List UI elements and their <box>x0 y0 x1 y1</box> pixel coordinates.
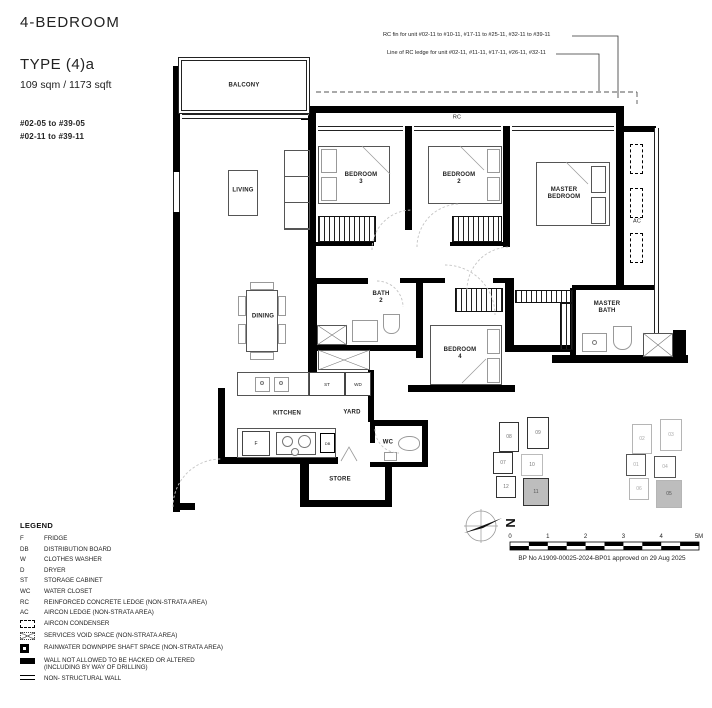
aircon-condenser <box>630 188 643 218</box>
unit-range-2: #02-11 to #39-11 <box>20 132 84 141</box>
pillow <box>591 197 606 224</box>
pillow <box>591 166 606 193</box>
services-void <box>643 333 673 357</box>
toilet <box>383 314 400 334</box>
legend-text: STORAGE CABINET <box>44 577 103 584</box>
scale-tick: 5M <box>695 534 703 540</box>
sofa <box>284 150 310 230</box>
dining-chair <box>238 296 246 316</box>
dining-chair <box>278 296 286 316</box>
key-plan-unit: 03 <box>660 419 682 451</box>
wall-segment <box>316 278 368 284</box>
room-label-balcony: BALCONY <box>228 83 259 90</box>
legend-text: AIRCON CONDENSER <box>44 620 109 627</box>
aircon-condenser <box>630 144 643 174</box>
wall-segment <box>572 285 658 290</box>
wall-segment <box>422 420 428 467</box>
scale-tick: 2 <box>584 534 588 540</box>
dining-chair <box>250 282 274 290</box>
legend-key: WC <box>20 588 44 595</box>
annotation-rc-ledge: Line of RC ledge for unit #02-11, #11-11… <box>387 50 546 56</box>
storage-cabinet: ST <box>309 372 345 396</box>
wall-segment <box>218 388 225 460</box>
wall-segment <box>173 503 195 510</box>
legend-item: RAINWATER DOWNPIPE SHAFT SPACE (NON-STRA… <box>20 644 290 654</box>
basin <box>352 320 378 342</box>
legend-item: WC WATER CLOSET <box>20 588 290 595</box>
wardrobe <box>515 290 573 303</box>
window <box>318 126 403 131</box>
page-title: 4-BEDROOM <box>20 14 120 31</box>
wardrobe <box>318 216 376 242</box>
pillow <box>321 177 337 201</box>
legend-text: DISTRIBUTION BOARD <box>44 546 111 553</box>
wall-segment <box>370 420 428 426</box>
sink-drain <box>279 381 283 385</box>
basin-drain <box>592 340 597 345</box>
legend-item: F FRIDGE <box>20 535 290 542</box>
kitchen-counter <box>237 372 309 396</box>
wall-segment <box>370 462 428 467</box>
wall-segment <box>218 457 338 464</box>
legend-heading: LEGEND <box>20 521 290 530</box>
legend-key: DB <box>20 546 44 553</box>
pillow <box>487 329 500 354</box>
legend-key: F <box>20 535 44 542</box>
key-plan-unit: 04 <box>654 456 676 478</box>
legend-key: RC <box>20 599 44 606</box>
key-plan-left: 08 09 07 10 12 11 <box>493 414 573 494</box>
key-plan-right: 02 03 01 04 06 05 <box>626 416 706 496</box>
legend-text: RAINWATER DOWNPIPE SHAFT SPACE (NON-STRA… <box>44 644 223 651</box>
room-label-master-bath: MASTER BATH <box>594 301 621 315</box>
legend-item: RC REINFORCED CONCRETE LEDGE (NON-STRATA… <box>20 599 290 606</box>
wardrobe <box>560 303 573 350</box>
sink-drain <box>260 381 264 385</box>
legend-item: NON- STRUCTURAL WALL <box>20 675 290 682</box>
hack-wall-icon <box>20 657 44 664</box>
legend-item: WALL NOT ALLOWED TO BE HACKED OR ALTERED… <box>20 657 290 671</box>
scale-tick: 0 <box>508 534 512 540</box>
wall-segment <box>308 106 624 113</box>
key-plan-unit: 09 <box>527 417 549 449</box>
rc-ledge-dashed-line <box>316 92 637 104</box>
unit-area: 109 sqm / 1173 sqft <box>20 79 111 91</box>
legend-item: SERVICES VOID SPACE (NON-STRATA AREA) <box>20 632 290 641</box>
room-label-wc: WC <box>383 440 393 447</box>
wall-segment <box>385 462 392 507</box>
hob-burner <box>282 436 293 447</box>
window <box>512 126 614 131</box>
wall-segment <box>423 278 445 283</box>
pillow <box>487 177 500 201</box>
scale-tick: 1 <box>546 534 550 540</box>
wardrobe <box>452 216 502 242</box>
key-plan-unit: 02 <box>632 424 652 454</box>
fridge: F <box>242 431 270 456</box>
key-plan-unit-highlighted: 05 <box>656 480 682 508</box>
rainwater-downpipe-icon <box>20 644 44 654</box>
sliding-door <box>182 114 308 119</box>
wall-segment <box>503 126 510 247</box>
toilet <box>613 326 632 350</box>
dining-chair <box>250 352 274 360</box>
wall-segment <box>673 330 686 360</box>
basin <box>384 452 397 461</box>
legend-key: ST <box>20 577 44 584</box>
pillow <box>321 149 337 173</box>
key-plan-unit: 10 <box>521 454 543 476</box>
key-plan-unit: 06 <box>629 478 649 500</box>
room-label-living: LIVING <box>232 188 253 195</box>
room-label-kitchen: KITCHEN <box>273 411 301 418</box>
services-void-icon <box>20 632 44 641</box>
scale-tick: 3 <box>622 534 626 540</box>
legend-key: W <box>20 556 44 563</box>
wall-segment <box>316 242 374 246</box>
pillow <box>487 149 500 173</box>
key-plan-unit-highlighted: 11 <box>523 478 549 506</box>
washer-dryer: WD <box>345 372 371 396</box>
dining-chair <box>278 324 286 344</box>
wall-segment <box>173 212 180 512</box>
legend-text: WATER CLOSET <box>44 588 92 595</box>
mark-rc: RC <box>453 115 461 122</box>
legend-text: SERVICES VOID SPACE (NON-STRATA AREA) <box>44 632 177 639</box>
dining-chair <box>238 324 246 344</box>
wall-segment <box>300 500 392 507</box>
north-arrow-icon: N <box>464 509 518 543</box>
legend-item: AIRCON CONDENSER <box>20 620 290 629</box>
legend-item: ST STORAGE CABINET <box>20 577 290 584</box>
room-label-yard: YARD <box>343 410 360 417</box>
key-plan-unit: 08 <box>499 422 519 452</box>
legend-item: W CLOTHES WASHER <box>20 556 290 563</box>
wall-segment <box>308 278 317 374</box>
wall-segment <box>505 278 514 352</box>
north-label: N <box>503 518 518 527</box>
mark-ac: AC <box>633 219 641 226</box>
scale-bar: 0 1 2 3 4 5M <box>508 534 703 550</box>
legend-text: DRYER <box>44 567 66 574</box>
floor-plan-page: 4-BEDROOM TYPE (4)a 109 sqm / 1173 sqft … <box>0 0 712 708</box>
legend-item: DB DISTRIBUTION BOARD <box>20 546 290 553</box>
room-label-bath2: BATH 2 <box>372 291 389 305</box>
wardrobe <box>455 288 503 312</box>
unit-range-1: #02-05 to #39-05 <box>20 119 85 128</box>
wall-segment <box>622 126 656 132</box>
key-plan-unit: 01 <box>626 454 646 476</box>
window <box>173 172 180 212</box>
legend-text: FRIDGE <box>44 535 67 542</box>
legend-key: D <box>20 567 44 574</box>
legend-item: AC AIRCON LEDGE (NON-STRATA AREA) <box>20 609 290 616</box>
room-label-bedroom4: BEDROOM 4 <box>444 347 477 361</box>
aircon-condenser-icon <box>20 620 44 629</box>
non-structural-wall-icon <box>20 675 44 681</box>
services-void <box>318 350 370 370</box>
unit-type: TYPE (4)a <box>20 56 95 73</box>
services-void <box>317 325 347 345</box>
hob-burner <box>291 448 299 456</box>
dining-table <box>246 290 278 352</box>
wall-segment <box>616 113 624 290</box>
approval-text: BP No A1909-00025-2024-BP01 approved on … <box>498 555 706 562</box>
legend-text: AIRCON LEDGE (NON-STRATA AREA) <box>44 609 154 616</box>
wall-segment <box>370 425 375 443</box>
bifold-door <box>341 447 357 461</box>
legend-key: AC <box>20 609 44 616</box>
scale-tick: 4 <box>660 534 664 540</box>
legend-item: D DRYER <box>20 567 290 574</box>
room-label-master-bedroom: MASTER BEDROOM <box>548 187 581 201</box>
toilet <box>398 436 420 451</box>
legend-text: CLOTHES WASHER <box>44 556 102 563</box>
room-label-store: STORE <box>329 477 351 484</box>
legend: LEGEND F FRIDGE DB DISTRIBUTION BOARD W … <box>20 521 290 685</box>
annotation-rc-fin: RC fin for unit #02-11 to #10-11, #17-11… <box>383 32 550 38</box>
aircon-condenser <box>630 233 643 263</box>
aircon-ledge-edge <box>654 128 659 342</box>
window <box>414 126 501 131</box>
hob-burner <box>298 435 311 448</box>
annotation-leader-lines <box>556 36 618 98</box>
key-plan-unit: 12 <box>496 476 516 498</box>
key-plan-unit: 07 <box>493 452 513 474</box>
room-label-dining: DINING <box>252 314 274 321</box>
wall-segment <box>408 385 515 392</box>
legend-text: WALL NOT ALLOWED TO BE HACKED OR ALTERED… <box>44 657 195 671</box>
wall-segment <box>450 242 506 246</box>
room-label-bedroom3: BEDROOM 3 <box>345 172 378 186</box>
room-label-bedroom2: BEDROOM 2 <box>443 172 476 186</box>
pillow <box>487 358 500 383</box>
wall-segment <box>405 126 412 230</box>
legend-text: NON- STRUCTURAL WALL <box>44 675 121 682</box>
legend-text: REINFORCED CONCRETE LEDGE (NON-STRATA AR… <box>44 599 207 606</box>
distribution-board: DB <box>320 433 335 453</box>
